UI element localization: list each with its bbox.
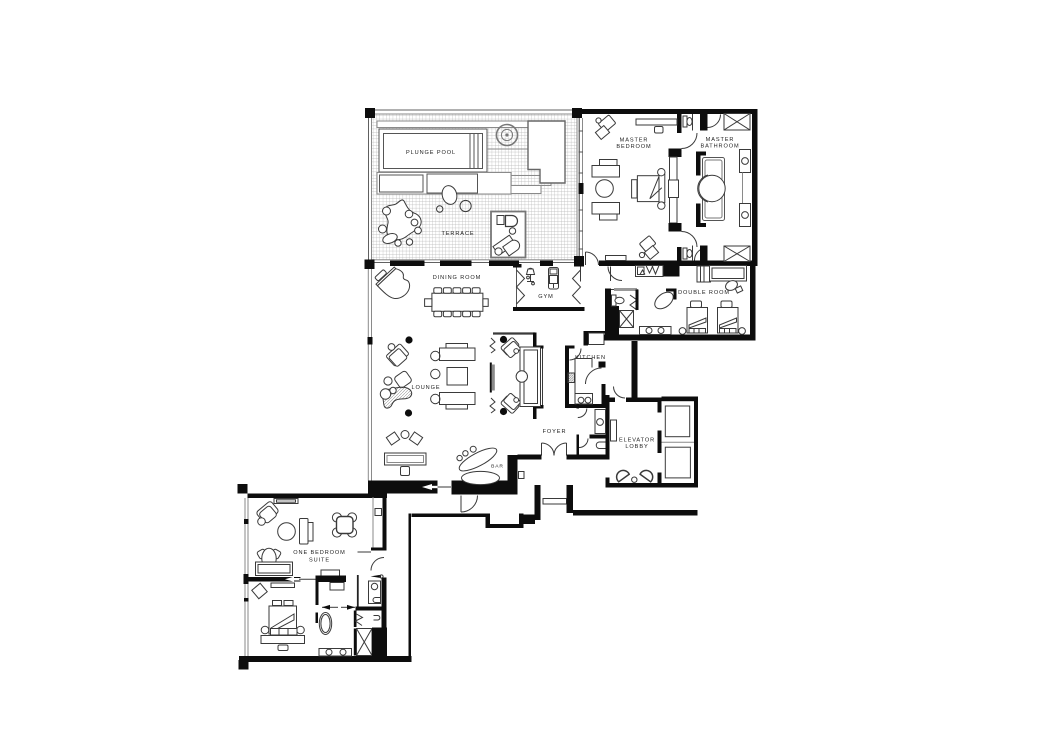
svg-text:ONE BEDROOM: ONE BEDROOM [293, 550, 345, 556]
svg-text:PLUNGE POOL: PLUNGE POOL [406, 150, 456, 156]
svg-text:DINING ROOM: DINING ROOM [433, 275, 481, 281]
svg-text:DOUBLE ROOM: DOUBLE ROOM [678, 290, 730, 296]
svg-text:SUITE: SUITE [309, 558, 330, 564]
svg-text:BEDROOM: BEDROOM [616, 144, 651, 150]
svg-text:LOUNGE: LOUNGE [411, 385, 440, 391]
svg-text:ELEVATOR: ELEVATOR [619, 438, 655, 444]
svg-text:FOYER: FOYER [543, 429, 567, 435]
svg-text:MASTER: MASTER [620, 138, 649, 144]
svg-text:TERRACE: TERRACE [441, 231, 474, 237]
svg-text:MASTER: MASTER [706, 137, 735, 143]
svg-text:BATHROOM: BATHROOM [700, 143, 739, 149]
svg-text:LOBBY: LOBBY [625, 444, 648, 450]
svg-text:GYM: GYM [538, 294, 553, 300]
svg-text:BAR: BAR [491, 464, 504, 470]
